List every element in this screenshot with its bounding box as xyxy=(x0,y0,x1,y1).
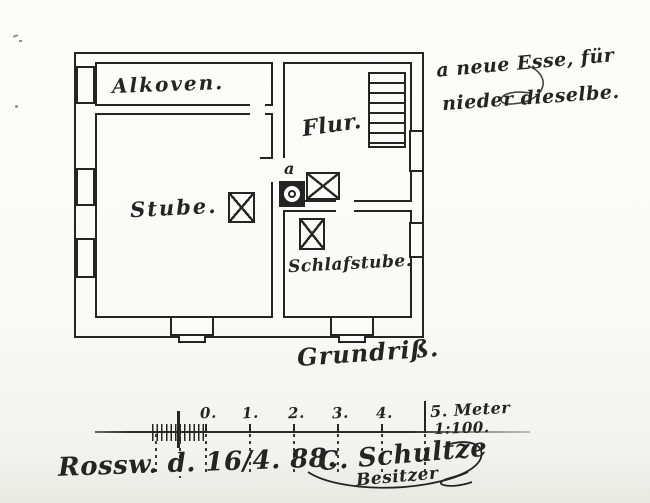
scale-end-label: 5. Meter xyxy=(430,398,511,421)
door-jamb-tick xyxy=(260,157,273,159)
room-label-stube: Stube. xyxy=(129,193,218,223)
door-opening-alkoven xyxy=(250,100,265,117)
scale-number-4: 4. xyxy=(376,404,394,423)
scale-tick xyxy=(293,424,295,433)
scale-number-0: 0. xyxy=(200,404,218,423)
window-symbol xyxy=(76,66,95,104)
scale-tick xyxy=(205,424,207,433)
stove-symbol-stube xyxy=(228,192,255,223)
scan-speck xyxy=(15,105,18,108)
window-symbol xyxy=(76,168,95,206)
plan-caption: Grundriß. xyxy=(296,333,440,372)
scan-speck xyxy=(19,40,22,42)
place-date-text: Rossw. d. 16/4. 88. xyxy=(58,443,338,483)
door-opening-flur-schlafstube xyxy=(336,198,354,213)
annotation-flourish xyxy=(490,60,580,120)
window-symbol xyxy=(76,238,95,278)
door-opening-stube-flur xyxy=(271,158,285,182)
window-symbol xyxy=(409,130,424,172)
scale-number-1: 1. xyxy=(242,404,260,423)
scale-number-2: 2. xyxy=(288,404,306,423)
staircase-symbol xyxy=(368,72,406,148)
scale-number-3: 3. xyxy=(332,404,350,423)
scanned-floorplan-page: Alkoven. Stube. Flur. Schlafstube. a Gru… xyxy=(0,0,650,503)
chimney-flue-icon xyxy=(284,186,300,202)
window-symbol xyxy=(170,316,214,336)
signature-flourish xyxy=(300,428,500,500)
chimney-symbol xyxy=(279,181,305,207)
stove-symbol-flur xyxy=(306,172,340,200)
stove-symbol-schlafstube xyxy=(299,218,325,250)
scale-tick xyxy=(249,424,251,433)
room-label-alkoven: Alkoven. xyxy=(112,70,225,98)
scan-speck xyxy=(13,34,18,38)
window-symbol xyxy=(330,316,374,336)
chimney-marker-label: a xyxy=(284,159,295,178)
window-sill xyxy=(178,334,206,343)
